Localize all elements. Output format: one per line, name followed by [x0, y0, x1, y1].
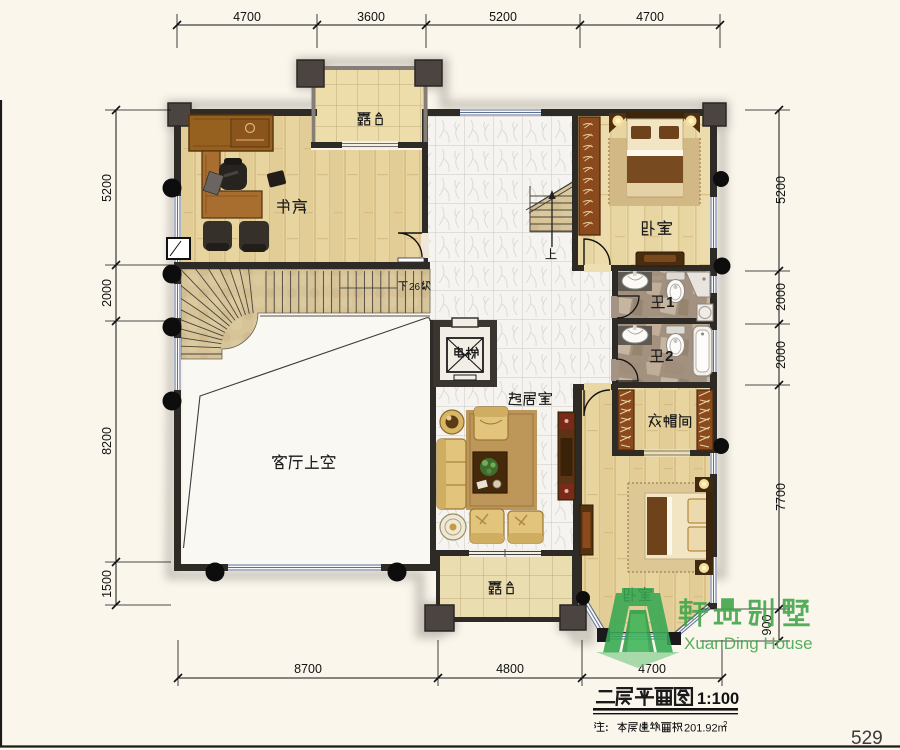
svg-text:26: 26	[409, 282, 421, 293]
svg-text:5200: 5200	[100, 174, 114, 202]
svg-text:1500: 1500	[100, 570, 114, 598]
svg-text:2000: 2000	[774, 283, 788, 311]
svg-text:4700: 4700	[636, 10, 664, 24]
svg-text:4700: 4700	[233, 10, 261, 24]
svg-text:1:100: 1:100	[697, 690, 739, 708]
svg-text:2000: 2000	[100, 279, 114, 307]
svg-text:529: 529	[851, 728, 883, 749]
svg-text:1: 1	[666, 294, 674, 311]
svg-text:8700: 8700	[294, 662, 322, 676]
svg-text:7700: 7700	[774, 483, 788, 511]
svg-text:8200: 8200	[100, 427, 114, 455]
svg-text:4800: 4800	[496, 662, 524, 676]
svg-text:2: 2	[723, 720, 728, 729]
svg-text:5200: 5200	[774, 176, 788, 204]
svg-text:XuanDing House: XuanDing House	[684, 634, 813, 653]
svg-text::: :	[605, 722, 609, 734]
svg-text:2: 2	[665, 348, 673, 365]
svg-text:3600: 3600	[357, 10, 385, 24]
svg-text:2000: 2000	[774, 341, 788, 369]
svg-text:201.92m: 201.92m	[684, 723, 727, 735]
svg-text:5200: 5200	[489, 10, 517, 24]
